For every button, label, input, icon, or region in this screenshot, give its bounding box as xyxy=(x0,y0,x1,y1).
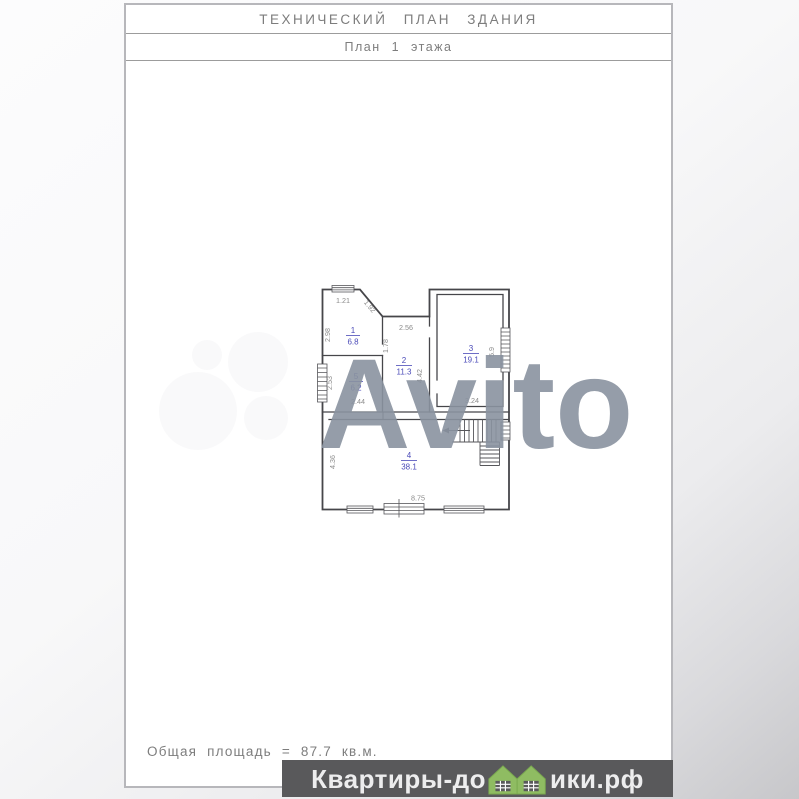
dim-label: 8.75 xyxy=(411,494,425,503)
page-title: ТЕХНИЧЕСКИЙ ПЛАН ЗДАНИЯ xyxy=(126,5,671,34)
dim-label: 4.36 xyxy=(328,455,337,469)
page-title-text: ТЕХНИЧЕСКИЙ ПЛАН ЗДАНИЯ xyxy=(259,12,538,27)
plan-windows xyxy=(318,286,511,518)
dimension-labels: 1.21 1.92 2.98 1.78 2.56 4.42 5.9 3.24 2… xyxy=(323,296,496,503)
svg-text:5: 5 xyxy=(354,372,359,381)
dim-label: 2.53 xyxy=(325,376,334,390)
dim-label: 1.92 xyxy=(362,298,378,315)
staircase xyxy=(443,420,500,466)
svg-text:19.1: 19.1 xyxy=(463,356,479,365)
avito-logo-circle xyxy=(228,332,288,392)
screenshot-root: { "document": { "title": "ТЕХНИЧЕСКИЙ ПЛ… xyxy=(0,0,799,799)
room-label-4: 4 38.1 xyxy=(401,451,417,472)
avito-logo-circle xyxy=(159,372,237,450)
svg-text:6.2: 6.2 xyxy=(350,384,362,393)
site-name-right: ики.рф xyxy=(550,766,644,792)
svg-text:4: 4 xyxy=(407,451,412,460)
room-label-3: 3 19.1 xyxy=(463,344,479,365)
total-area-note: Общая площадь = 87.7 кв.м. xyxy=(147,744,378,759)
dim-label: 3.24 xyxy=(465,396,479,405)
floor-plan-drawing: 1.21 1.92 2.98 1.78 2.56 4.42 5.9 3.24 2… xyxy=(302,277,517,522)
svg-text:11.3: 11.3 xyxy=(397,368,413,377)
dim-label: 2.44 xyxy=(351,397,365,406)
room-label-5: 5 6.2 xyxy=(349,372,363,393)
avito-logo-circle xyxy=(244,396,288,440)
dim-label: 5.9 xyxy=(487,347,496,357)
document-page: ТЕХНИЧЕСКИЙ ПЛАН ЗДАНИЯ План 1 этажа xyxy=(124,3,673,788)
dim-label: 1.78 xyxy=(381,339,390,353)
dim-label: 4.42 xyxy=(415,369,424,383)
room-label-1: 1 6.8 xyxy=(346,326,360,347)
site-name-left: Квартиры-до xyxy=(311,766,486,792)
svg-text:1: 1 xyxy=(351,326,356,335)
green-houses-icon xyxy=(487,762,549,796)
dim-label: 2.56 xyxy=(399,323,413,332)
stair-direction-arrow-icon xyxy=(443,428,471,434)
avito-logo-circle xyxy=(192,340,222,370)
page-subtitle: План 1 этажа xyxy=(126,34,671,61)
page-subtitle-text: План 1 этажа xyxy=(345,40,453,54)
dim-label: 2.98 xyxy=(323,328,332,342)
room-labels: 1 6.8 2 11.3 3 19.1 4 38.1 5 xyxy=(346,326,479,472)
room-label-2: 2 11.3 xyxy=(396,356,412,377)
svg-text:38.1: 38.1 xyxy=(401,463,417,472)
svg-text:3: 3 xyxy=(469,344,474,353)
dim-label: 1.21 xyxy=(336,296,350,305)
site-watermark-band: Квартиры-до ики.рф xyxy=(282,760,673,797)
svg-text:6.8: 6.8 xyxy=(347,338,359,347)
svg-text:2: 2 xyxy=(402,356,407,365)
